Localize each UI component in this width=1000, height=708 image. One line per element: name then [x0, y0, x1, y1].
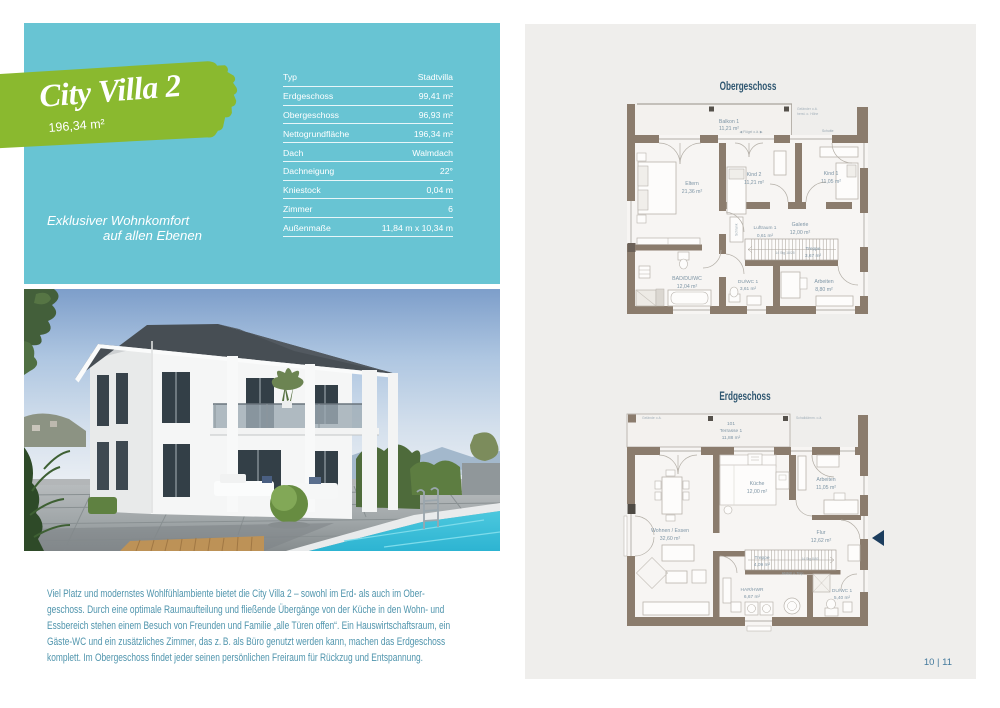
svg-text:Schalldämm. o.ä.: Schalldämm. o.ä.: [796, 416, 822, 420]
svg-text:◀ Flügel o.ä. ▶: ◀ Flügel o.ä. ▶: [740, 130, 763, 134]
svg-text:11,21 m²: 11,21 m²: [744, 180, 764, 186]
svg-text:BAD/DU/WC: BAD/DU/WC: [672, 276, 702, 282]
svg-text:32,60 m²: 32,60 m²: [660, 536, 681, 542]
svg-text:11,88 m²: 11,88 m²: [722, 435, 741, 441]
svg-text:HAR/HWR: HAR/HWR: [741, 587, 764, 593]
svg-text:12,04 m²: 12,04 m²: [677, 284, 698, 290]
svg-text:Kind 2: Kind 2: [747, 172, 762, 178]
svg-text:101: 101: [727, 421, 735, 427]
svg-text:Galerie: Galerie: [792, 222, 809, 228]
svg-text:12,00 m²: 12,00 m²: [790, 230, 811, 236]
svg-text:14 Stg 8/50: 14 Stg 8/50: [801, 557, 818, 561]
svg-text:Treppe: Treppe: [754, 555, 769, 561]
svg-text:herst. o. Höhe: herst. o. Höhe: [797, 112, 818, 116]
svg-text:DU/WC 1: DU/WC 1: [738, 279, 759, 285]
svg-text:Abstell u. Trep.: Abstell u. Trep.: [782, 572, 805, 576]
svg-text:Balkon 1: Balkon 1: [719, 119, 739, 125]
svg-text:Kind 1: Kind 1: [824, 171, 839, 177]
svg-text:14 Stg 18/25: 14 Stg 18/25: [775, 251, 794, 255]
svg-text:3,67 m²: 3,67 m²: [805, 253, 822, 259]
svg-text:11,05 m²: 11,05 m²: [816, 485, 836, 491]
svg-text:Arbeiten: Arbeiten: [816, 477, 835, 483]
svg-text:3,61 m²: 3,61 m²: [740, 286, 757, 292]
svg-text:Schutte: Schutte: [822, 129, 834, 133]
svg-text:Treppe: Treppe: [805, 246, 820, 252]
svg-text:11,21 m²: 11,21 m²: [719, 126, 739, 132]
svg-text:Eltern: Eltern: [685, 181, 699, 187]
svg-text:5,40 m²: 5,40 m²: [834, 595, 851, 601]
svg-text:21,36 m²: 21,36 m²: [682, 189, 703, 195]
svg-text:Wohnen / Essen: Wohnen / Essen: [651, 528, 689, 534]
svg-text:Geländer o.ä.: Geländer o.ä.: [797, 107, 818, 111]
svg-text:12,00 m²: 12,00 m²: [747, 489, 768, 495]
svg-text:Küche: Küche: [750, 481, 765, 487]
svg-text:12,62 m²: 12,62 m²: [811, 538, 832, 544]
svg-text:6,67 m²: 6,67 m²: [744, 594, 761, 600]
svg-text:Gelände o.ä.: Gelände o.ä.: [642, 416, 661, 420]
svg-text:Schrank: Schrank: [735, 223, 739, 236]
svg-text:0,61 m²: 0,61 m²: [757, 233, 774, 239]
svg-text:Luftraum 1: Luftraum 1: [754, 225, 777, 231]
svg-text:Flur: Flur: [817, 530, 826, 536]
svg-text:8,80 m²: 8,80 m²: [815, 287, 833, 293]
svg-text:Arbeiten: Arbeiten: [814, 279, 833, 285]
svg-text:Terrasse 1: Terrasse 1: [720, 428, 743, 434]
svg-text:DU/WC 1: DU/WC 1: [832, 588, 853, 594]
svg-text:4,09 m²: 4,09 m²: [754, 562, 771, 568]
